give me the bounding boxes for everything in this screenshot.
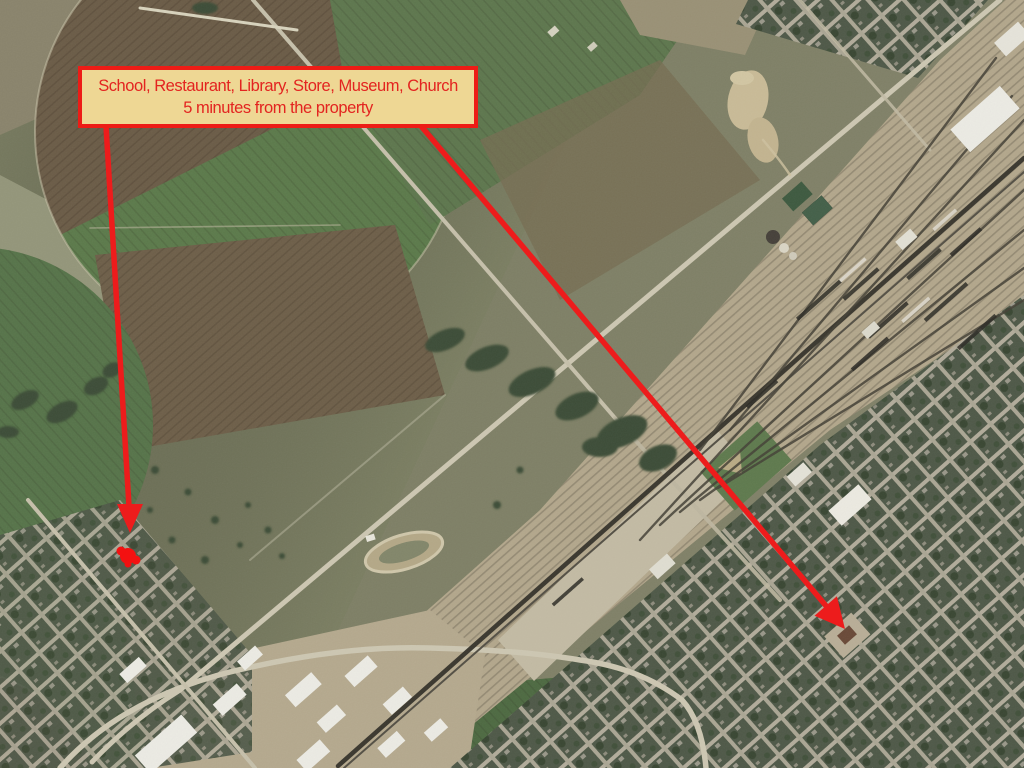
callout-box: School, Restaurant, Library, Store, Muse… xyxy=(78,66,478,128)
callout-line-1: School, Restaurant, Library, Store, Muse… xyxy=(82,75,474,97)
callout-line-2: 5 minutes from the property xyxy=(82,97,474,119)
screenshot-canvas: School, Restaurant, Library, Store, Muse… xyxy=(0,0,1024,768)
